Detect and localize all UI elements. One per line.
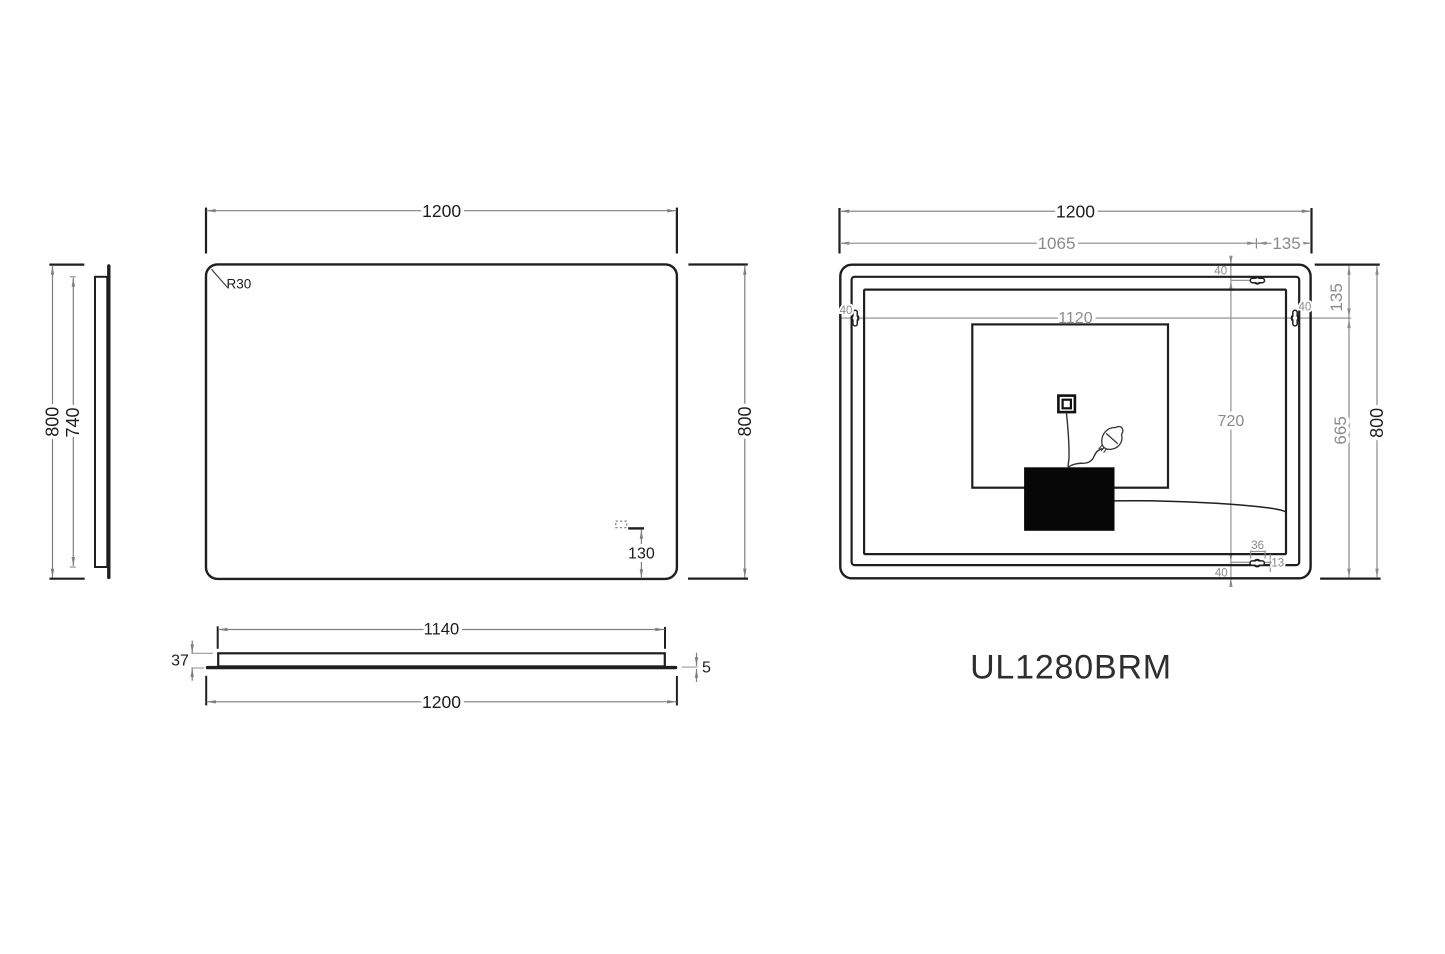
svg-text:1200: 1200 [422, 692, 461, 712]
svg-text:40: 40 [840, 305, 853, 317]
svg-text:800: 800 [43, 407, 63, 437]
svg-text:800: 800 [735, 406, 755, 436]
svg-text:R30: R30 [227, 277, 252, 292]
svg-text:135: 135 [1327, 283, 1346, 311]
svg-text:720: 720 [1218, 413, 1245, 430]
svg-text:40: 40 [1214, 265, 1227, 277]
svg-text:1200: 1200 [1056, 201, 1095, 221]
svg-text:1200: 1200 [422, 201, 461, 221]
svg-text:5: 5 [702, 660, 711, 677]
svg-text:740: 740 [63, 407, 83, 437]
svg-text:800: 800 [1367, 408, 1387, 438]
svg-text:665: 665 [1331, 416, 1350, 444]
svg-text:1140: 1140 [424, 621, 459, 639]
svg-text:UL1280BRM: UL1280BRM [970, 648, 1172, 686]
svg-text:40: 40 [1299, 302, 1312, 314]
svg-text:130: 130 [628, 546, 655, 563]
svg-text:37: 37 [171, 653, 189, 670]
svg-text:13: 13 [1271, 558, 1284, 570]
svg-text:1065: 1065 [1038, 234, 1076, 253]
svg-text:135: 135 [1272, 234, 1300, 253]
svg-text:36: 36 [1251, 540, 1264, 552]
